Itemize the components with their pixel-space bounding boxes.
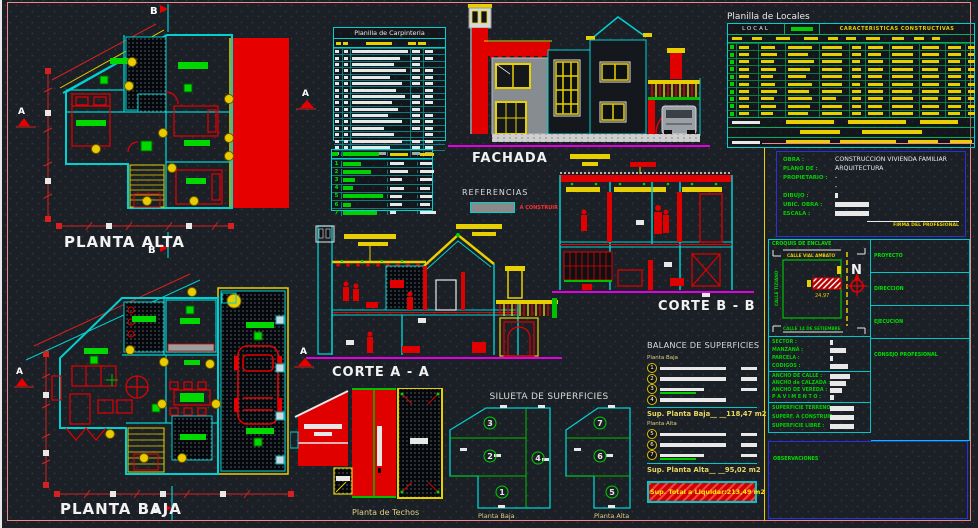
- porch: [66, 428, 106, 440]
- carpinteria-row: [334, 48, 445, 54]
- svg-text:2: 2: [487, 452, 493, 461]
- north-compass: N: [847, 263, 867, 296]
- balance-row: 6: [647, 440, 757, 451]
- planta-alta-plan: B B A A PLANTA ALTA: [16, 2, 316, 262]
- section-marker-a-right: A: [296, 89, 316, 109]
- window-grid: [564, 252, 612, 281]
- silueta-pb-label: Planta Baja: [478, 512, 515, 520]
- planta-alta-title: PLANTA ALTA: [64, 233, 185, 251]
- section-marker-b-top: B: [150, 4, 168, 32]
- lot-dimension: 24,97: [815, 293, 829, 299]
- croquis-box: CROQUIS DE ENCLAVE 24,97: [768, 239, 871, 337]
- car: [662, 106, 696, 135]
- roof-slab: [560, 173, 732, 185]
- center-roof: [352, 388, 396, 498]
- silueta-superficies: SILUETA DE SUPERFICIES 3 2 1 4 7 6 5: [448, 392, 650, 524]
- carpinteria-row: [334, 86, 445, 92]
- silueta-pa-label: Planta Alta: [594, 512, 629, 520]
- locales-footer-row: [728, 127, 974, 137]
- clock-symbol: [227, 294, 241, 308]
- observaciones-box: OBSERVACIONES: [768, 441, 968, 519]
- referencias-title: REFERENCIAS: [448, 188, 558, 197]
- title-block: OBRA :CONSTRUCCION VIVIENDA FAMILIAR PLA…: [762, 143, 974, 522]
- gable-roof: [590, 17, 646, 40]
- lower-furniture: [618, 254, 720, 286]
- locales-subheader: [728, 35, 974, 43]
- carpinteria-row: [334, 67, 445, 73]
- carpinteria-row: [334, 131, 445, 137]
- balance-row: 1: [647, 363, 757, 374]
- croquis-sketch: 24,97 CALLE VIAL AMBATO CALLE 14 DE SETI…: [769, 240, 870, 336]
- locales-row: [728, 102, 974, 109]
- legend-row: 7: [332, 208, 432, 216]
- locales-row: [728, 50, 974, 57]
- planta-baja-title: PLANTA BAJA: [60, 500, 182, 518]
- street-bottom-label: CALLE 14 DE SETIEMBRE: [783, 326, 841, 331]
- escala-value-block: [835, 211, 869, 216]
- corte-a-title: CORTE A - A: [332, 365, 430, 380]
- ground-band: [492, 134, 700, 142]
- side-bracket: [290, 432, 298, 448]
- lintels: [566, 187, 722, 192]
- observaciones-label: OBSERVACIONES: [773, 457, 818, 462]
- ubic-value-block: [835, 202, 869, 207]
- legend-row: 3: [332, 175, 432, 183]
- legend-row: 1: [332, 159, 432, 167]
- carpinteria-row: [334, 74, 445, 80]
- plano-value: ARQUITECTURA: [835, 165, 883, 172]
- svg-text:3: 3: [487, 419, 493, 428]
- region-numbers: 3 2 1 4 7 6 5: [484, 417, 618, 498]
- planta-techos: Planta de Techos: [290, 388, 450, 522]
- a-construir-swatch: [470, 202, 515, 213]
- proyecto-box: PROYECTO: [871, 239, 970, 273]
- corte-b-section: CORTE B - B: [552, 150, 754, 318]
- svg-text:B: B: [150, 6, 158, 17]
- dibujo-label: DIBUJO :: [783, 193, 835, 199]
- garage: [218, 288, 288, 474]
- title-block-info: OBRA :CONSTRUCCION VIVIENDA FAMILIAR PLA…: [776, 151, 966, 237]
- balance-pb-total: Sup. Planta Baja__ __118,47 m2: [647, 410, 757, 418]
- garage-roof: [398, 388, 442, 498]
- ubic-obra-label: UBIC. OBRA :: [783, 202, 835, 208]
- propietario-label: PROPIETARIO :: [783, 175, 835, 181]
- locales-header-caracteristicas: CARACTERISTICAS CONSTRUCTIVAS: [820, 24, 974, 34]
- svg-text:6: 6: [597, 452, 603, 461]
- planilla-carpinteria: Planilla de Carpinteria: [333, 27, 446, 141]
- ejecucion-box: EJECUCION: [871, 306, 970, 339]
- bbq-balcony: [496, 266, 558, 356]
- balance-title: BALANCE DE SUPERFICIES: [647, 340, 757, 350]
- carpinteria-title: Planilla de Carpinteria: [334, 28, 445, 39]
- balance-row: 4: [647, 395, 757, 406]
- street-fields: ANCHO DE CALLE : ANCHO de CALZADA : ANCH…: [768, 372, 871, 403]
- dibujo-value-block: [835, 193, 838, 198]
- carpinteria-row: [334, 112, 445, 118]
- callouts: [344, 224, 502, 246]
- section-marker-a-left: A: [16, 107, 36, 127]
- silueta-title: SILUETA DE SUPERFICIES: [448, 392, 650, 402]
- title-block-frame-line: [764, 148, 765, 521]
- balance-row: 2: [647, 374, 757, 385]
- planilla-locales: Planilla de Locales LOCAL CARACTERISTICA…: [727, 12, 975, 148]
- techos-title: Planta de Techos: [352, 508, 419, 517]
- roof-band: [486, 42, 550, 56]
- section-marker-a-left: A: [14, 367, 34, 387]
- obra-label: OBRA :: [783, 157, 835, 163]
- svg-text:A: A: [302, 89, 309, 99]
- stairs: [128, 428, 164, 472]
- balance-pa-total: Sup. Planta Alta__ __95,02 m2: [647, 466, 757, 474]
- locales-row: [728, 80, 974, 87]
- obra-value: CONSTRUCCION VIVIENDA FAMILIAR: [835, 156, 947, 163]
- carpinteria-row: [334, 118, 445, 124]
- direccion-box: DIRECCION: [871, 273, 970, 306]
- a-construir-label: A CONSTRUIR: [520, 205, 558, 211]
- escala-label: ESCALA :: [783, 211, 835, 217]
- locales-row: [728, 95, 974, 102]
- terrace: [230, 38, 289, 208]
- svg-text:7: 7: [597, 419, 603, 428]
- locales-row: [728, 73, 974, 80]
- locales-footer-row: [728, 117, 974, 127]
- carpinteria-row: [334, 61, 445, 67]
- svg-text:1: 1: [499, 488, 505, 497]
- balance-row: 5: [647, 429, 757, 440]
- legend-row: 6: [332, 200, 432, 208]
- legend-header: [332, 150, 432, 159]
- croquis-label: CROQUIS DE ENCLAVE: [772, 242, 831, 247]
- callouts: [570, 154, 610, 166]
- svg-text:A: A: [16, 367, 23, 377]
- firma-area: FIRMA DEL PROFESIONAL: [783, 221, 961, 228]
- fachada-elevation: FACHADA: [448, 0, 710, 168]
- locales-header-local: LOCAL: [728, 24, 785, 34]
- carpinteria-header: [334, 39, 445, 48]
- annex-roof: [334, 468, 352, 494]
- counter: [168, 344, 214, 351]
- carpinteria-row: [334, 99, 445, 105]
- annex: [648, 48, 700, 136]
- plano-label: PLANO DE :: [783, 166, 835, 172]
- street-top-label: CALLE VIAL AMBATO: [787, 253, 836, 258]
- surface-fields: SUPERFICIE TERRENO : SUPERF. A CONSTRUIR…: [768, 403, 871, 433]
- legend-row: 2: [332, 167, 432, 175]
- planta-baja-plan: A A B PLANTA BAJA: [14, 258, 314, 526]
- svg-text:4: 4: [535, 454, 541, 463]
- street-corners: [773, 248, 865, 334]
- carpinteria-row: [334, 93, 445, 99]
- balance-superficies: BALANCE DE SUPERFICIES Planta Baja 1 2 3: [647, 340, 757, 503]
- locales-header: LOCAL CARACTERISTICAS CONSTRUCTIVAS: [728, 24, 974, 35]
- carpinteria-row: [334, 106, 445, 112]
- legend-row: 4: [332, 184, 432, 192]
- legend-row: 5: [332, 192, 432, 200]
- svg-text:5: 5: [609, 488, 615, 497]
- kitchen-hatch: [124, 302, 164, 352]
- firma-label: FIRMA DEL PROFESIONAL: [893, 223, 959, 228]
- svg-text:A: A: [18, 107, 25, 117]
- carpinteria-row: [334, 54, 445, 60]
- silueta-shapes: 3 2 1 4 7 6 5 Planta Baja Planta Alta: [448, 404, 650, 520]
- balance-pb-label: Planta Baja: [647, 355, 757, 361]
- door: [436, 280, 456, 310]
- balance-row: 7: [647, 450, 757, 461]
- figures: [581, 205, 669, 234]
- locales-row: [728, 65, 974, 72]
- locales-title: Planilla de Locales: [727, 12, 975, 22]
- corte-b-title: CORTE B - B: [658, 299, 754, 314]
- building-footprint: [813, 278, 841, 289]
- locales-row: [728, 43, 974, 50]
- balance-grand-total: Sup. Total a Liquidar:213,49 m2: [647, 481, 757, 503]
- corte-a-section: CORTE A - A: [306, 222, 562, 384]
- street-left-label: CALLE TIZIANO: [774, 270, 779, 306]
- fachada-title: FACHADA: [472, 151, 548, 166]
- dining-table-top: [180, 393, 204, 402]
- balance-row: 3: [647, 384, 757, 395]
- balance-pa-label: Planta Alta: [647, 421, 757, 427]
- locales-row: [728, 58, 974, 65]
- sheet-edge-line: [0, 0, 2, 528]
- carpinteria-row: [334, 80, 445, 86]
- locales-row: [728, 87, 974, 94]
- chimney: [468, 4, 492, 134]
- carpinteria-row: [334, 137, 445, 143]
- referencias: REFERENCIAS A CONSTRUIR: [448, 188, 558, 213]
- locales-row: [728, 110, 974, 117]
- parcel-fields: SECTOR : MANZANA : PARCELA : CODIGOS :: [768, 337, 871, 372]
- legend-table: 1 2 3 4: [331, 149, 433, 211]
- left-roof: [295, 391, 348, 466]
- consejo-box: CONSEJO PROFESIONAL: [871, 339, 970, 441]
- carpinteria-row: [334, 125, 445, 131]
